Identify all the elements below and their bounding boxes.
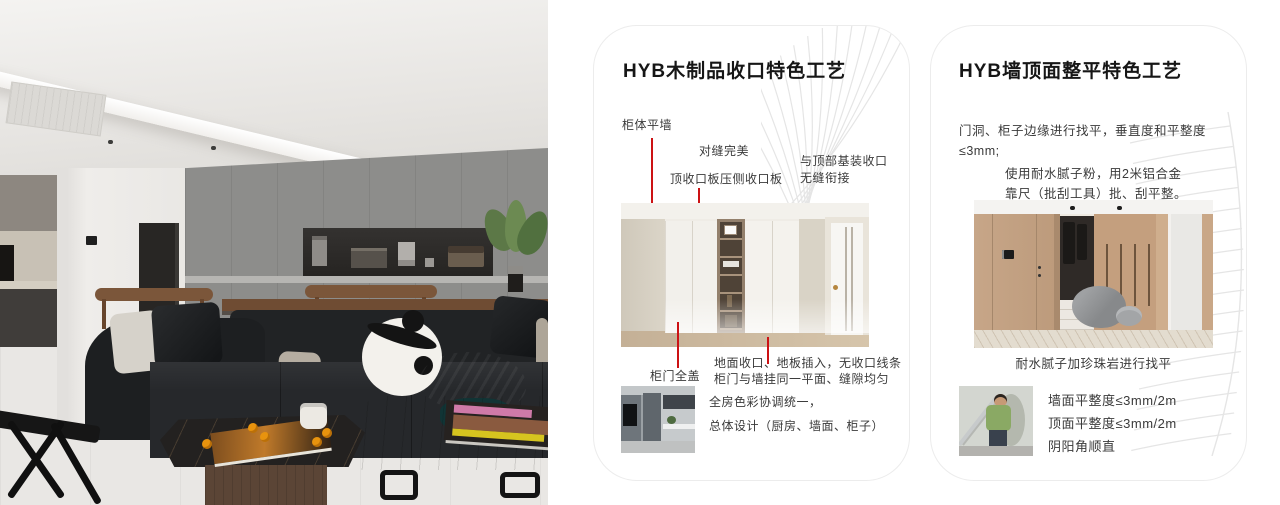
kitchen-area — [0, 175, 60, 347]
coffee-machine — [312, 236, 327, 266]
round-pouf — [1116, 306, 1142, 326]
magazine — [444, 400, 548, 448]
right-door-edge — [1202, 212, 1213, 340]
dining-chair — [95, 288, 213, 301]
kitchen-base-cabinet — [0, 289, 60, 347]
hall-corner — [1156, 212, 1168, 336]
card2-title: HYB墙顶面整平特色工艺 — [959, 56, 1182, 83]
caption-putty-pearlite: 耐水腻子加珍珠岩进行找平 — [974, 354, 1213, 374]
plant-vase — [508, 266, 523, 292]
stone-table-base — [205, 465, 327, 505]
ceiling-spotlight — [1070, 206, 1075, 210]
door-handle-dot — [1038, 266, 1041, 269]
callout-top-board-press: 顶收口板压侧收口板 — [670, 170, 783, 187]
card-wood-finishing: HYB木制品收口特色工艺 柜体平墙 对缝完美 顶收口板压侧收口板 与顶部基装收口… — [593, 25, 910, 481]
black-pillow — [151, 302, 223, 369]
dining-chair-leg — [102, 299, 106, 329]
card-wall-leveling: HYB墙顶面整平特色工艺 门洞、柜子边缘进行找平，垂直度和平整度≤3mm; 使用… — [930, 25, 1247, 481]
worker-floor — [959, 446, 1033, 456]
callout-seam-perfect: 对缝完美 — [699, 142, 749, 159]
text-color-unify-1: 全房色彩协调统一， — [709, 393, 822, 410]
door-handle-dot — [1038, 274, 1041, 277]
herringbone-floor — [974, 330, 1213, 348]
table-leg — [380, 470, 418, 500]
callout-floor-joint-2: 柜门与墙挂同一平面、缝隙均匀 — [714, 370, 889, 387]
paragraph-putty: 使用耐水腻子粉，用2米铝合金靠尺（批刮工具）批、刮平整。 — [1005, 164, 1193, 204]
dining-chair — [305, 285, 437, 298]
white-mug — [300, 403, 327, 429]
render-left-wall — [621, 217, 665, 333]
orange-fruit — [202, 439, 212, 449]
whole-room-photo-thumbnail — [621, 386, 695, 453]
ceiling-sensor — [108, 140, 113, 144]
hall-ceiling — [974, 200, 1213, 214]
shelf-box-decor — [723, 261, 739, 267]
shelf-frame-decor — [724, 225, 737, 235]
doorway-opening — [1168, 212, 1202, 340]
cabinet-render-image — [621, 203, 869, 347]
worker-shirt — [986, 405, 1011, 431]
kitchen-appliance — [0, 245, 14, 283]
render-reflection — [665, 299, 869, 333]
thumb-upper-cabinet — [663, 395, 695, 409]
niche-counter — [185, 276, 548, 283]
text-color-unify-2: 总体设计（厨房、墙面、柜子） — [709, 417, 884, 434]
orange-fruit — [260, 432, 270, 442]
hanging-clothes — [1077, 224, 1087, 260]
callout-cabinet-flush-wall: 柜体平墙 — [622, 116, 672, 133]
folding-stool — [0, 408, 100, 505]
living-room-photo — [0, 0, 548, 505]
espresso-machine — [398, 242, 415, 266]
orange-fruit — [312, 437, 322, 447]
cup — [425, 258, 434, 267]
cabinet-handle-groove — [1134, 244, 1136, 306]
hall-door-seam — [992, 214, 993, 332]
spec-corner-straight: 阴阳角顺直 — [1048, 435, 1116, 458]
stone-coffee-table — [160, 415, 365, 505]
fan-line-pattern — [761, 25, 910, 222]
spec-wall-flatness: 墙面平整度≤3mm/2m — [1048, 389, 1177, 412]
spec-ceiling-flatness: 顶面平整度≤3mm/2m — [1048, 412, 1177, 435]
worker-photo-thumbnail — [959, 386, 1033, 456]
wood-coffee-table — [350, 396, 548, 505]
cabinet-handle-groove — [1148, 244, 1150, 306]
hall-door-seam — [1036, 214, 1037, 332]
ceiling-spotlight — [1117, 206, 1122, 210]
light-switch — [86, 236, 97, 245]
hanging-clothes — [1063, 222, 1075, 264]
table-leg — [500, 472, 540, 498]
thumb-counter — [663, 424, 695, 429]
callout-floor-joint-1: 地面收口、地板插入，无收口线条 — [714, 354, 902, 371]
thumb-tv — [623, 404, 637, 426]
ceiling-sensor — [211, 146, 216, 150]
paragraph-leveling: 门洞、柜子边缘进行找平，垂直度和平整度≤3mm; — [959, 121, 1211, 161]
cup-shelf — [351, 248, 387, 268]
page: HYB木制品收口特色工艺 柜体平墙 对缝完美 顶收口板压侧收口板 与顶部基装收口… — [0, 0, 1280, 505]
door-knob — [833, 285, 838, 290]
thumb-plant — [667, 416, 676, 424]
callout-door-full-cover: 柜门全盖 — [650, 367, 700, 384]
orange-fruit — [322, 428, 332, 438]
kitchen-counter — [0, 281, 60, 289]
hallway-photo — [974, 200, 1213, 348]
callout-top-joint-2: 无缝衔接 — [800, 169, 850, 186]
smart-lock — [1002, 250, 1014, 259]
card1-title: HYB木制品收口特色工艺 — [623, 56, 846, 83]
orange-fruit — [248, 423, 258, 433]
thumb-floor — [621, 441, 695, 453]
kitchen-upper-cabinet — [0, 175, 60, 231]
hall-left-wall — [974, 212, 1054, 334]
callout-top-joint-1: 与顶部基装收口 — [800, 152, 888, 169]
leader-line — [677, 322, 679, 368]
radio-speaker — [448, 246, 484, 267]
coffee-niche — [303, 228, 493, 276]
